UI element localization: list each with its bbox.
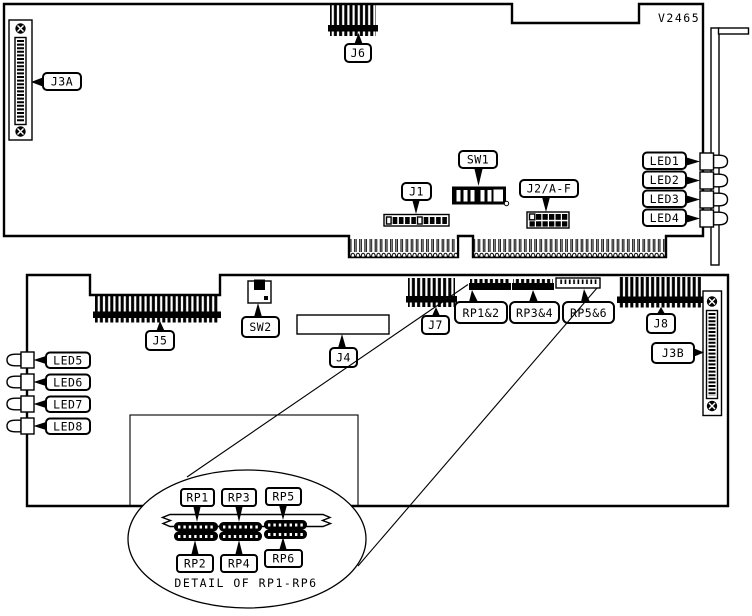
svg-text:LED2: LED2 <box>650 173 680 187</box>
board-code: V2465 <box>658 11 700 25</box>
svg-text:SW1: SW1 <box>467 153 489 167</box>
svg-text:RP1&2: RP1&2 <box>462 306 499 320</box>
svg-text:RP3&4: RP3&4 <box>516 306 553 320</box>
svg-text:SW2: SW2 <box>249 320 271 334</box>
connector-j3b <box>703 291 722 416</box>
svg-text:J3A: J3A <box>51 75 73 89</box>
led1-assembly <box>700 153 728 170</box>
connector-j2af <box>527 212 569 228</box>
upper-board: V2465 J3A J6 <box>4 4 703 257</box>
connector-j7 <box>406 278 457 307</box>
switch-sw2 <box>248 280 271 304</box>
edge-fingers-left <box>350 239 457 257</box>
svg-text:J3B: J3B <box>662 346 684 360</box>
svg-text:J8: J8 <box>654 317 669 331</box>
led8-assembly <box>7 418 34 434</box>
svg-text:J7: J7 <box>428 318 443 332</box>
svg-text:RP4: RP4 <box>228 557 250 571</box>
detail-caption: DETAIL OF RP1-RP6 <box>174 576 317 590</box>
label-rp3: RP3 <box>222 489 256 506</box>
edge-fingers-right <box>474 239 665 257</box>
svg-text:RP1: RP1 <box>186 491 208 505</box>
label-rp2: RP2 <box>177 555 213 572</box>
resistor-pack-rp56 <box>556 278 600 288</box>
led5-assembly <box>7 352 34 368</box>
svg-text:LED5: LED5 <box>53 354 83 368</box>
connector-j3a <box>9 20 32 140</box>
svg-text:J4: J4 <box>336 351 351 365</box>
svg-text:J2/A-F: J2/A-F <box>527 182 572 196</box>
resistor-pack-rp34 <box>512 279 554 290</box>
svg-text:LED3: LED3 <box>650 192 680 206</box>
svg-text:J5: J5 <box>153 334 168 348</box>
detail-rp1-rp2-pills <box>174 522 218 541</box>
label-rp6: RP6 <box>265 550 302 567</box>
svg-text:LED4: LED4 <box>650 211 680 225</box>
svg-text:LED7: LED7 <box>53 398 83 412</box>
led2-assembly <box>700 172 728 189</box>
connector-j4 <box>297 315 389 334</box>
svg-text:RP6: RP6 <box>272 552 294 566</box>
svg-text:RP5: RP5 <box>272 490 294 504</box>
svg-text:LED1: LED1 <box>650 154 680 168</box>
pcb-layout-diagram: V2465 J3A J6 <box>0 0 752 611</box>
label-rp5: RP5 <box>266 488 301 505</box>
svg-text:RP3: RP3 <box>228 491 250 505</box>
connector-j6 <box>328 5 378 36</box>
upper-board-outline <box>4 4 703 257</box>
mounting-bracket <box>711 28 749 265</box>
led3-assembly <box>700 191 728 208</box>
svg-text:J1: J1 <box>409 185 424 199</box>
svg-text:LED6: LED6 <box>53 376 83 390</box>
led4-assembly <box>700 210 728 227</box>
connector-j8 <box>617 277 703 308</box>
detail-rp3-rp4-pills <box>219 522 262 541</box>
led7-assembly <box>7 396 34 412</box>
detail-view: RP1 RP3 RP5 RP2 RP4 RP6 DETAIL OF RP1-RP… <box>128 470 366 608</box>
svg-text:RP2: RP2 <box>184 557 206 571</box>
switch-sw1 <box>452 187 509 206</box>
connector-j1 <box>384 215 449 227</box>
detail-rp5-rp6-pills <box>264 520 307 539</box>
svg-text:J6: J6 <box>351 46 366 60</box>
resistor-pack-rp12 <box>469 279 511 290</box>
connector-j5 <box>93 295 221 323</box>
led6-assembly <box>7 374 34 390</box>
lower-board: J5 SW2 J4 J7 <box>7 275 728 506</box>
label-rp4: RP4 <box>221 555 257 572</box>
svg-text:LED8: LED8 <box>53 420 83 434</box>
label-rp1: RP1 <box>181 489 214 506</box>
